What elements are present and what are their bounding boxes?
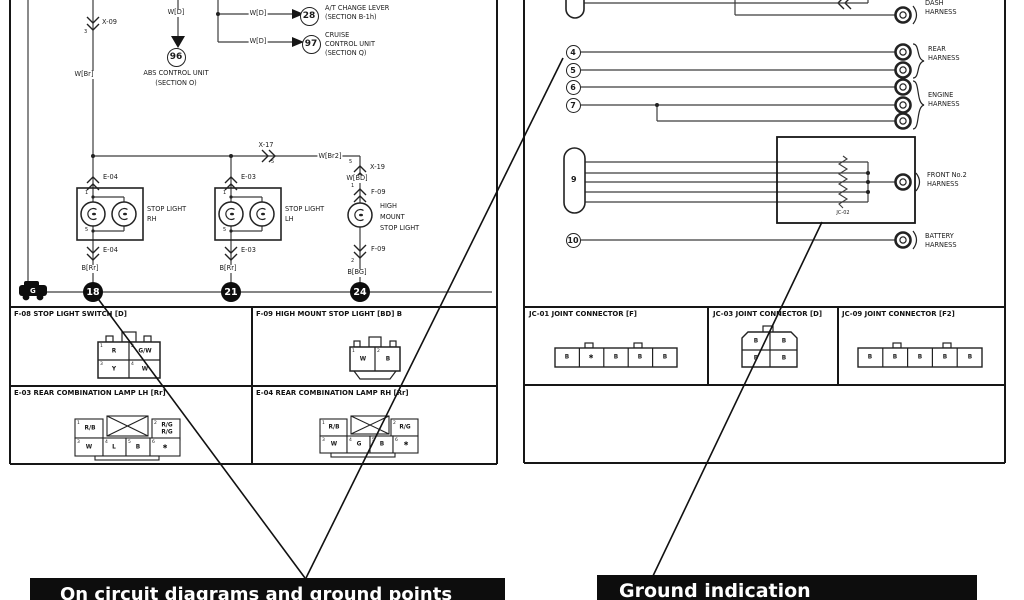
stop-light-lh-label-2: LH <box>285 216 294 224</box>
connector-ref-x17: X-17 <box>259 142 274 150</box>
cruise-label-1: CRUISE <box>325 32 349 40</box>
rear-harness-label-1: REAR <box>928 46 946 54</box>
battery-harness-label-2: HARNESS <box>925 242 957 250</box>
jc03-cell: B <box>782 356 786 363</box>
right-circuit-wires <box>581 0 896 240</box>
wire-color-wd: W[D] <box>249 38 268 46</box>
front2-harness-label-1: FRONT No.2 <box>927 172 967 180</box>
pin-number: 1 <box>351 184 354 190</box>
high-mount-label-1: HIGH <box>380 203 397 211</box>
engine-harness-label-1: ENGINE <box>928 92 953 100</box>
ground-ref-5: 5 <box>566 63 581 78</box>
e04-cell: R/B <box>329 425 340 432</box>
pin-number: 2 <box>154 421 157 426</box>
callout-ground-indication: Ground indication <box>597 575 977 600</box>
connector-chevrons <box>87 0 851 260</box>
pin-number: 1 <box>322 421 325 426</box>
wire-color-wbr: W[Br] <box>74 71 95 79</box>
ground-point-24: 24 <box>350 282 370 302</box>
high-mount-label-2: MOUNT <box>380 214 405 222</box>
jc09-cell: B <box>968 355 972 362</box>
jc01-cell: B <box>565 355 569 362</box>
ground-point-18: 18 <box>83 282 103 302</box>
connector-ref-e04: E-04 <box>103 174 118 182</box>
e03-cell: B <box>136 445 140 452</box>
pin-number: 3 <box>77 440 80 445</box>
ground-ref-4: 4 <box>566 45 581 60</box>
jc01-title: JC-01 JOINT CONNECTOR [F] <box>529 310 637 318</box>
dash-harness-label-1: DASH <box>925 0 944 8</box>
wire-color-wd: W[D] <box>167 9 186 17</box>
e03-cell: L <box>112 445 116 452</box>
jc01-cell: B <box>638 355 642 362</box>
cruise-label-2: CONTROL UNIT <box>325 41 375 49</box>
engine-harness-label-2: HARNESS <box>928 101 960 109</box>
ground-ref-10: 10 <box>566 233 581 248</box>
ground-rings <box>896 8 911 248</box>
left-junction-dots <box>91 12 233 233</box>
wire-color-wbd: W[BD] <box>345 175 368 183</box>
abs-unit-section: (SECTION O) <box>155 80 196 88</box>
pin-number: 2 <box>377 349 380 354</box>
pin-number: 3 <box>84 30 87 36</box>
e04-cell: R/G <box>399 425 410 432</box>
f09-cell: B <box>386 357 390 364</box>
ground-ref-9: 9 <box>571 175 577 184</box>
connector-ref-e03: E-03 <box>241 247 256 255</box>
pin-number: 2 <box>393 421 396 426</box>
ground-ref-7: 7 <box>566 98 581 113</box>
f08-title: F-08 STOP LIGHT SWITCH [D] <box>14 310 127 318</box>
pin-number: 5 <box>372 438 375 443</box>
jc09-cell: B <box>918 355 922 362</box>
ground-ref-6: 6 <box>566 80 581 95</box>
pin-number: 1 <box>77 421 80 426</box>
f08-cell: G/W <box>138 349 151 356</box>
high-mount-label-3: STOP LIGHT <box>380 225 419 233</box>
pin-number: 1 <box>223 191 226 197</box>
pin-number: 5 <box>128 440 131 445</box>
front2-harness-label-2: HARNESS <box>927 181 959 189</box>
jc01-cell: B <box>614 355 618 362</box>
jc01-cell: B <box>663 355 667 362</box>
f09-cell: W <box>360 357 366 364</box>
pin-number: 1 <box>352 349 355 354</box>
f09-connector-drawing <box>350 337 400 379</box>
jc02-label: JC-02 <box>836 211 849 217</box>
cruise-label-3: (SECTION Q) <box>325 50 366 58</box>
connector-ref-x19: X-19 <box>370 164 385 172</box>
callout-pointer-lines <box>96 58 822 578</box>
pin-number: 5 <box>271 160 274 166</box>
pin-number: 2 <box>131 344 134 349</box>
connector-ref-f09: F-09 <box>371 189 386 197</box>
pin-number: 4 <box>105 440 108 445</box>
pin-number: 4 <box>349 438 352 443</box>
wire-color-brr: B[Rr] <box>81 265 100 273</box>
pin-number: 3 <box>322 438 325 443</box>
e03-cell: W <box>86 445 92 452</box>
callout-ground-points: On circuit diagrams and ground points <box>30 578 505 600</box>
f08-cell: Y <box>112 367 116 374</box>
connector-ref-x09: X-09 <box>102 19 117 27</box>
pin-number: 1 <box>100 344 103 349</box>
jc09-cell: B <box>893 355 897 362</box>
at-change-lever-section: (SECTION B-1h) <box>325 14 377 22</box>
pin-number: 6 <box>152 440 155 445</box>
stop-light-rh-label-2: RH <box>147 216 157 224</box>
stop-light-lh-label-1: STOP LIGHT <box>285 206 324 214</box>
wire-color-wbr2: W[Br2] <box>317 153 342 161</box>
abs-unit-label: ABS CONTROL UNIT <box>143 70 208 78</box>
ground-point-21: 21 <box>221 282 241 302</box>
pin-number: 2 <box>351 259 354 265</box>
e04-cell: ✱ <box>404 442 409 449</box>
jc09-cell: B <box>943 355 947 362</box>
f08-cell: R <box>112 349 116 356</box>
jc03-cell: B <box>754 356 758 363</box>
circuit-ref-96: 96 <box>167 48 186 67</box>
e04-cell: B <box>380 442 384 449</box>
connector-ref-f09: F-09 <box>371 246 386 254</box>
e04-cell: G <box>357 442 362 449</box>
jc09-title: JC-09 JOINT CONNECTOR [F2] <box>842 310 955 318</box>
pin-number: 5 <box>85 228 88 234</box>
wiring-diagram-page: X-09 3 W[Br] W[D] W[D] W[D] 28 A/T CHANG… <box>0 0 1024 600</box>
diagram-linework <box>0 0 1024 600</box>
jc09-cell: B <box>868 355 872 362</box>
jc03-title: JC-03 JOINT CONNECTOR [D] <box>713 310 822 318</box>
jc03-cell: B <box>754 339 758 346</box>
pin-number: 5 <box>349 160 352 166</box>
f08-cell: W <box>142 367 148 374</box>
circuit-ref-28: 28 <box>300 7 319 26</box>
pin-number: 5 <box>223 228 226 234</box>
stop-light-rh-label-1: STOP LIGHT <box>147 206 186 214</box>
e03-cell: R/B <box>85 426 96 433</box>
jc03-cell: B <box>782 339 786 346</box>
connector-ref-e03: E-03 <box>241 174 256 182</box>
high-mount-bulb <box>348 203 372 227</box>
battery-harness-label-1: BATTERY <box>925 233 954 241</box>
e04-title: E-04 REAR COMBINATION LAMP RH [Rr] <box>256 389 409 397</box>
e03-title: E-03 REAR COMBINATION LAMP LH [Rr] <box>14 389 166 397</box>
jc01-cell: ✱ <box>589 355 594 362</box>
pin-number: 3 <box>100 362 103 367</box>
f09-title: F-09 HIGH MOUNT STOP LIGHT [BD] B <box>256 310 402 318</box>
pin-number: 6 <box>395 438 398 443</box>
e03-cell: R/G <box>161 430 172 437</box>
wire-color-bbg: B[BG] <box>346 269 367 277</box>
circuit-ref-97: 97 <box>302 35 321 54</box>
at-change-lever-label: A/T CHANGE LEVER <box>325 5 389 13</box>
ground-car-letter: G <box>30 287 36 295</box>
e03-cell: R/G <box>161 423 172 430</box>
dash-harness-label-2: HARNESS <box>925 9 957 17</box>
wire-color-wd: W[D] <box>249 10 268 18</box>
pin-number: 1 <box>85 191 88 197</box>
rear-harness-label-2: HARNESS <box>928 55 960 63</box>
connector-ref-e04: E-04 <box>103 247 118 255</box>
right-junction-dots <box>655 103 870 194</box>
wire-color-brr: B[Rr] <box>219 265 238 273</box>
pin-number: 4 <box>131 362 134 367</box>
e04-cell: W <box>331 442 337 449</box>
e03-cell: ✱ <box>163 445 168 452</box>
